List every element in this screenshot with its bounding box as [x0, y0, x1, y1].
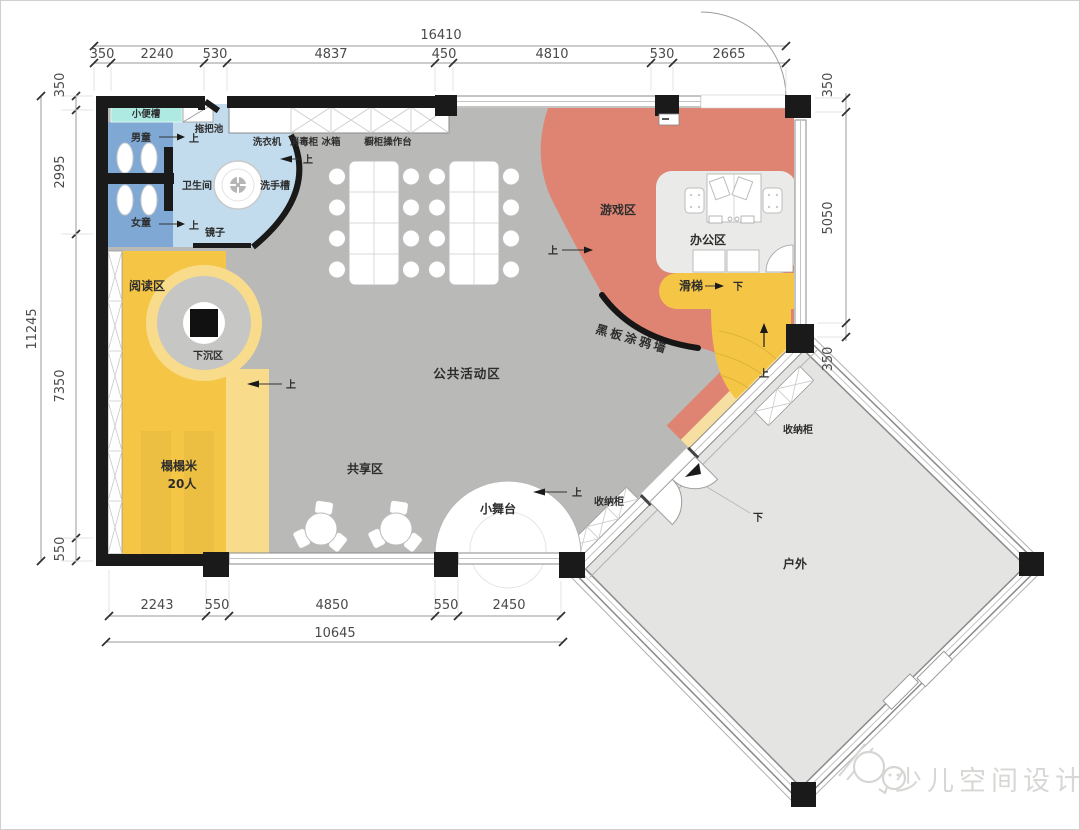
dim-top-4: 450 — [432, 47, 457, 62]
reading-tatami-zone — [108, 251, 269, 554]
floor-plan-canvas: 小便槽 拖把池 洗衣机 消毒柜 冰箱 橱柜操作台 男童 女童 卫生间 洗手槽 镜… — [0, 0, 1080, 830]
column — [785, 95, 811, 118]
bookshelf-strip — [108, 251, 122, 554]
wash-basin — [214, 161, 262, 209]
dim-left-0: 350 — [53, 73, 68, 98]
column — [786, 324, 814, 353]
label-mirror: 镜子 — [205, 226, 225, 239]
dim-bottom-2: 4850 — [315, 598, 348, 613]
label-fridge: 冰箱 — [321, 136, 341, 148]
label-storage-inner: 收纳柜 — [594, 495, 624, 508]
down-label-slide: 下 — [733, 281, 743, 293]
up-label-girls: 上 — [189, 219, 199, 232]
office-cabinet — [727, 250, 759, 272]
dim-left-1: 2995 — [53, 155, 68, 188]
dim-right-0: 350 — [821, 73, 836, 98]
label-storage-outdoor: 收纳柜 — [783, 423, 813, 436]
office-cabinet — [693, 250, 725, 272]
dimensions-top: 16410 350 2240 530 4837 450 4810 530 266… — [90, 28, 790, 91]
column — [655, 95, 679, 116]
office-armchair — [685, 188, 704, 213]
label-mop-pool: 拖把池 — [195, 123, 224, 135]
label-game: 游戏区 — [600, 202, 636, 217]
dim-top-1: 2240 — [140, 47, 173, 62]
label-urinal: 小便槽 — [131, 108, 161, 120]
label-slide: 滑梯 — [679, 278, 703, 293]
bathroom-partition — [164, 147, 173, 211]
label-sunken: 下沉区 — [193, 349, 223, 362]
label-toilet: 卫生间 — [182, 179, 212, 192]
label-washing-machine: 洗衣机 — [253, 136, 282, 148]
dim-left-total: 11245 — [25, 308, 40, 349]
label-stage: 小舞台 — [480, 501, 516, 516]
label-reading: 阅读区 — [129, 278, 165, 293]
label-outdoor: 户外 — [783, 556, 807, 571]
dim-top-total: 16410 — [420, 28, 461, 43]
up-label-stairs: 上 — [759, 367, 769, 380]
dim-left-2: 7350 — [53, 369, 68, 402]
dimensions-left: 11245 350 2995 7350 550 — [25, 73, 93, 565]
desk-monitor — [709, 216, 722, 223]
column — [559, 552, 585, 578]
kitchen-counter-cabinet — [229, 107, 449, 133]
dim-bottom-total: 10645 — [314, 626, 355, 641]
dim-top-0: 350 — [90, 47, 115, 62]
office-armchair — [763, 188, 782, 213]
dim-top-6: 530 — [650, 47, 675, 62]
dim-bottom-3: 550 — [434, 598, 459, 613]
dim-bottom-1: 550 — [205, 598, 230, 613]
dim-top-5: 4810 — [535, 47, 568, 62]
label-kitchen-counter: 橱柜操作台 — [364, 136, 412, 148]
dimensions-bottom: 2243 550 4850 550 2450 10645 — [102, 570, 567, 646]
dim-bottom-0: 2243 — [140, 598, 173, 613]
up-label-game: 上 — [548, 244, 558, 257]
dim-top-7: 2665 — [712, 47, 745, 62]
column — [791, 782, 816, 807]
column — [435, 95, 457, 116]
label-tatami-capacity: 20人 — [168, 476, 198, 491]
watermark: 少儿空间设计 — [839, 744, 1080, 797]
label-sink: 洗手槽 — [260, 179, 290, 192]
label-public-activity: 公共活动区 — [433, 366, 501, 381]
dim-bottom-4: 2450 — [492, 598, 525, 613]
up-label-bath-entry: 上 — [303, 153, 313, 166]
column-in-sunken-area — [190, 309, 218, 337]
entrance-opening — [701, 95, 786, 108]
dimensions-right: 350 5050 350 — [815, 73, 850, 372]
down-label-terrace-door: 下 — [753, 512, 763, 524]
office-zone — [656, 171, 796, 273]
label-sterilizer: 消毒柜 — [290, 136, 319, 148]
dim-right-1: 5050 — [821, 201, 836, 234]
dim-right-2: 350 — [821, 347, 836, 372]
desk-monitor — [741, 216, 754, 223]
up-label-tatami: 上 — [286, 378, 296, 391]
dim-top-3: 4837 — [314, 47, 347, 62]
column — [1019, 552, 1044, 576]
label-girls: 女童 — [131, 216, 151, 229]
column — [203, 552, 229, 577]
mirror — [193, 243, 251, 248]
label-shared: 共享区 — [347, 461, 383, 476]
label-office: 办公区 — [690, 232, 726, 247]
dim-top-2: 530 — [203, 47, 228, 62]
up-label-stage: 上 — [572, 486, 582, 499]
label-boys: 男童 — [131, 131, 151, 144]
label-tatami: 榻榻米 — [160, 458, 198, 473]
up-label-boys: 上 — [189, 132, 199, 145]
column — [434, 552, 458, 577]
dim-left-3: 550 — [53, 537, 68, 562]
watermark-text: 少儿空间设计 — [895, 766, 1080, 797]
floor-plan-drawing: 小便槽 拖把池 洗衣机 消毒柜 冰箱 橱柜操作台 男童 女童 卫生间 洗手槽 镜… — [1, 1, 1080, 830]
